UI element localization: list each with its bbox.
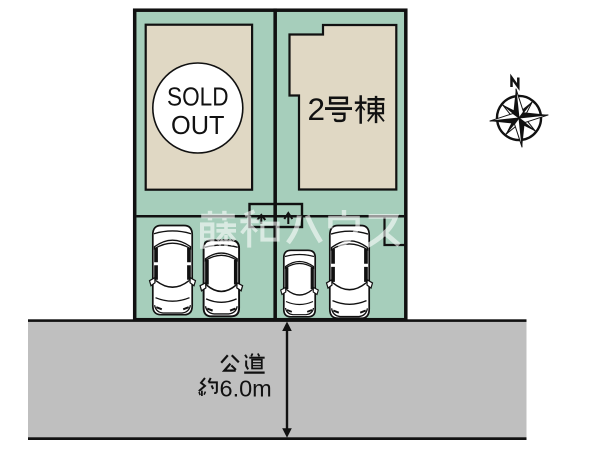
svg-text:6.0m: 6.0m [220, 376, 272, 402]
svg-text:SOLD: SOLD [167, 82, 229, 112]
svg-text:OUT: OUT [171, 110, 225, 140]
svg-text:2: 2 [308, 91, 326, 127]
